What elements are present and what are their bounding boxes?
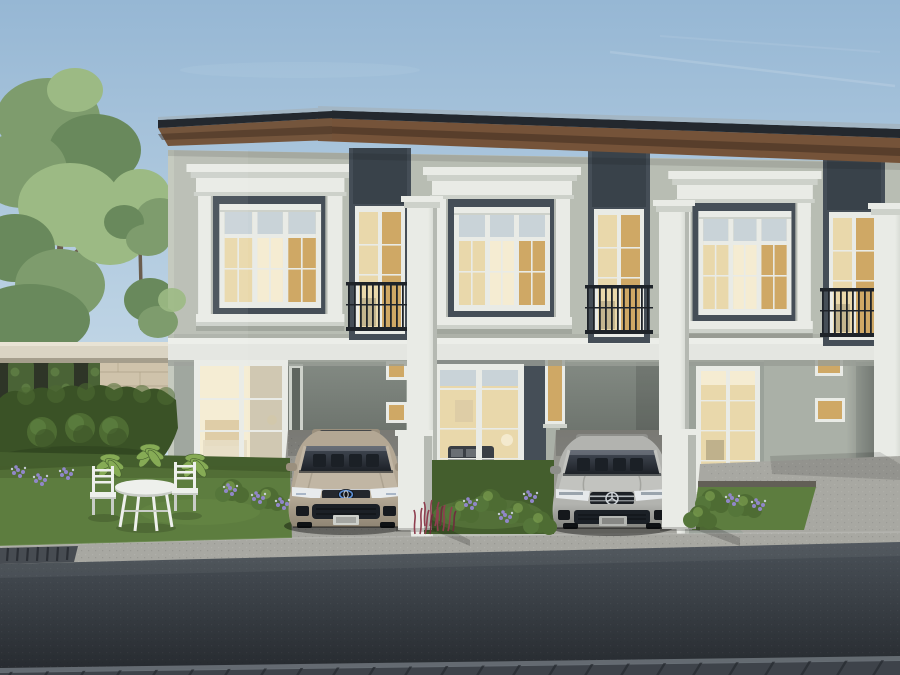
hood (558, 476, 666, 491)
stair-window (543, 356, 567, 428)
left-lawn (0, 466, 292, 548)
silver-sedan (550, 434, 674, 536)
unit2-balcony (585, 151, 653, 343)
drain-grate (0, 546, 78, 564)
champagne-sedan (284, 429, 408, 535)
side-mirror (286, 463, 297, 471)
townhouse-rendering (0, 0, 900, 675)
road (0, 542, 900, 673)
unit3-decorative-window (668, 171, 821, 338)
side-mirror (550, 466, 561, 474)
unit2-decorative-window (423, 167, 581, 334)
unit1-balcony (346, 148, 414, 340)
